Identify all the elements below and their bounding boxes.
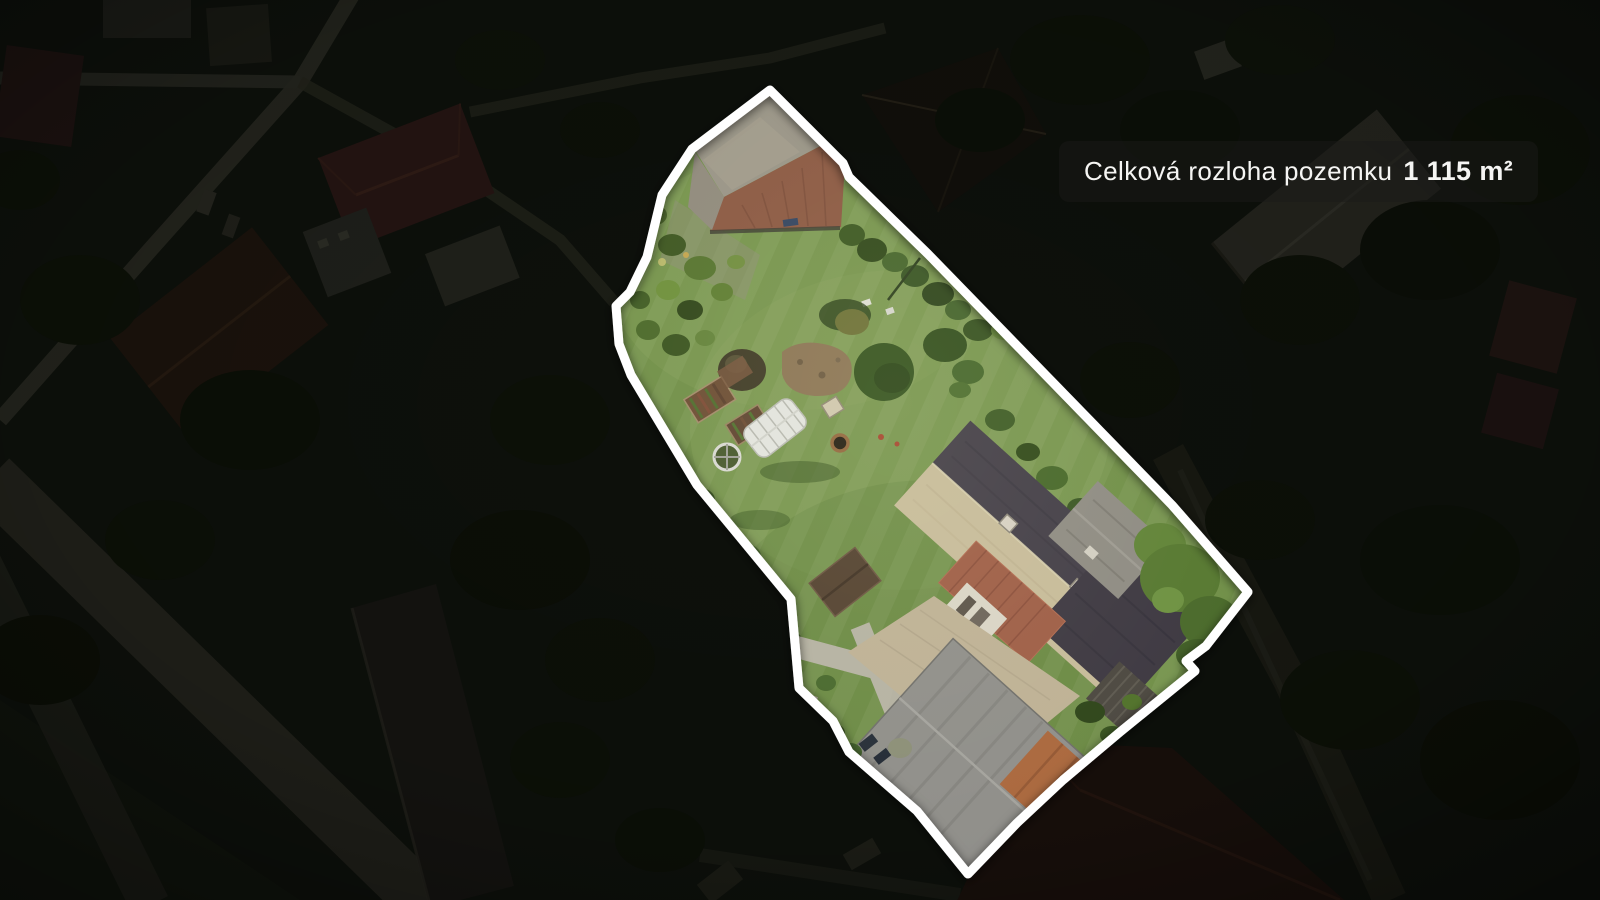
area-badge: Celková rozloha pozemku 1 115 m² <box>1059 141 1538 202</box>
aerial-property-photo: Celková rozloha pozemku 1 115 m² <box>0 0 1600 900</box>
area-badge-value: 1 115 m² <box>1403 156 1513 187</box>
area-badge-label: Celková rozloha pozemku <box>1084 156 1392 187</box>
aerial-scene <box>0 0 1600 900</box>
